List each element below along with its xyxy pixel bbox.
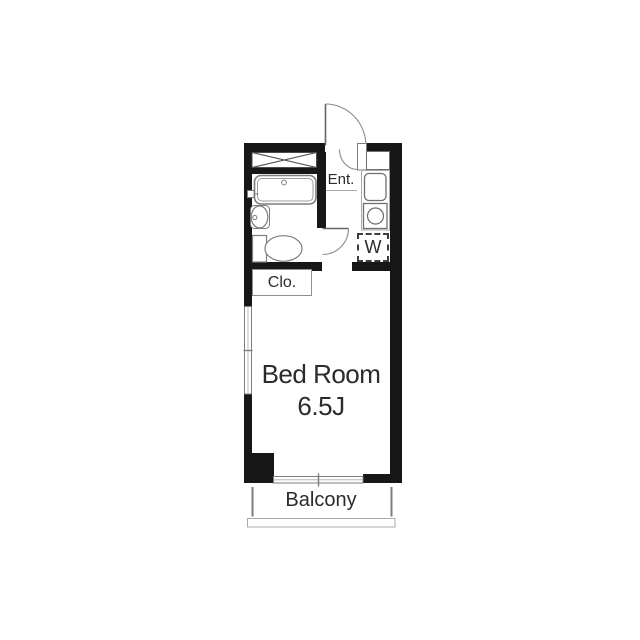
shoe-cabinet-outline xyxy=(367,152,390,170)
storage-x-box xyxy=(252,153,317,168)
window-balcony xyxy=(274,474,364,487)
toilet-tank xyxy=(253,236,267,263)
entrance-label: Ent. xyxy=(322,171,360,188)
wash-basin xyxy=(251,206,270,229)
closet-label: Clo. xyxy=(268,274,296,292)
bathtub-outer xyxy=(255,176,317,205)
washer-label: W xyxy=(365,237,382,258)
fixtures-layer xyxy=(0,0,640,640)
floor-plan: Ent. W Clo. Bed Room 6.5J Balcony xyxy=(0,0,640,640)
toilet-bowl xyxy=(265,236,302,262)
balcony-railing xyxy=(248,519,396,528)
bathtub xyxy=(255,176,317,205)
entrance-inner-arc xyxy=(340,150,358,170)
basin-bowl xyxy=(251,206,268,228)
entrance-door-jamb xyxy=(358,144,367,171)
toilet xyxy=(253,236,303,263)
shoe-cabinet xyxy=(367,152,390,170)
bathroom-door-swing xyxy=(323,229,349,255)
faucet-body xyxy=(248,191,255,198)
balcony-label: Balcony xyxy=(247,489,395,512)
kitchen-sink xyxy=(365,174,387,201)
stove-burner-icon xyxy=(368,208,384,224)
bathroom-door-arc xyxy=(323,229,349,255)
entrance-door-arc xyxy=(326,104,367,146)
bedroom-name-label: Bed Room xyxy=(250,359,392,390)
closet-box: Clo. xyxy=(252,269,312,296)
washer-space: W xyxy=(357,233,389,262)
kitchen-unit xyxy=(362,171,390,231)
bathtub-drain-icon xyxy=(282,180,287,185)
bedroom-size-label: 6.5J xyxy=(250,391,392,422)
